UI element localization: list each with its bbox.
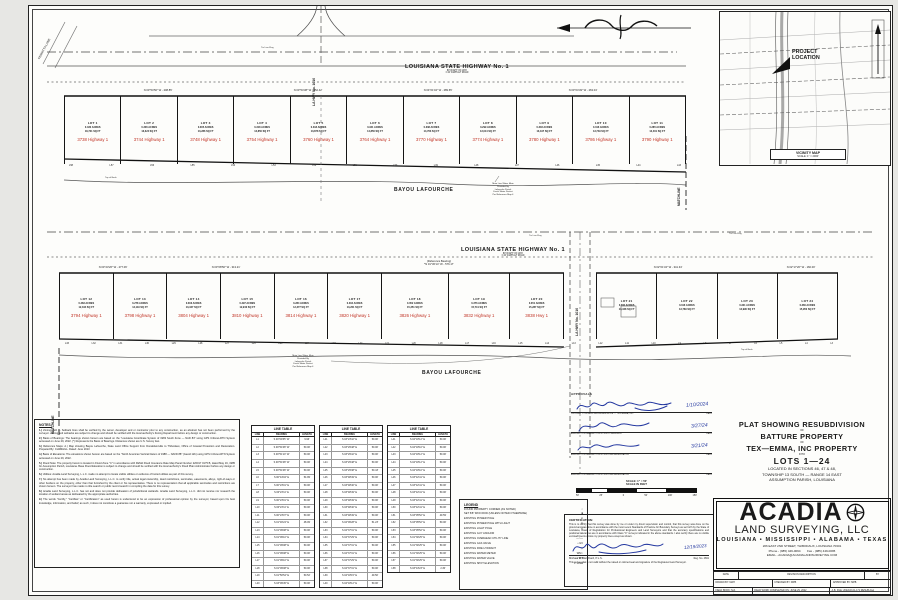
line-id: L42 bbox=[388, 445, 400, 452]
line-length: 50.00' bbox=[436, 445, 450, 452]
line-label: L52 bbox=[312, 164, 316, 167]
lot-acres: 0.283 ACRES bbox=[79, 302, 95, 305]
line-bearing: S 04°37'29" E bbox=[332, 558, 368, 565]
revision-header-row: DATE REVISION DESCRIPTION BY bbox=[714, 572, 890, 580]
lot-parcel: LOT 16 0.284 ACRES 12,377 SQ FT 3814 Hig… bbox=[275, 273, 329, 339]
lot-number: LOT 6 bbox=[370, 121, 380, 125]
scale-tick: 50' bbox=[644, 494, 647, 497]
lot-number: LOT 10 bbox=[595, 121, 607, 125]
lot-sqft: 13,324 SQ FT bbox=[141, 130, 157, 133]
line-table-3: LINE TABLE LINE BEARING LENGTH L41 S 04°… bbox=[387, 425, 451, 573]
line-length: 50.00' bbox=[436, 460, 450, 467]
legend-item-label: SET 5/8" IRON ROD (UNLESS NOTED OTHERWIS… bbox=[464, 513, 527, 516]
scale-tick: 25' bbox=[599, 494, 602, 497]
line-bearing: S 03°29'48" E bbox=[332, 460, 368, 467]
col-bearing: BEARING bbox=[400, 433, 436, 436]
lot-address: 3820 Highway 1 bbox=[339, 313, 370, 318]
lot-number: LOT 24 bbox=[802, 299, 814, 303]
line-id: L57 bbox=[388, 558, 400, 565]
col-line: LINE bbox=[252, 433, 264, 436]
line-table-row: L27 S 03°48'46" E 50.00' bbox=[320, 483, 382, 491]
scale-tick: 100' bbox=[668, 494, 672, 497]
line-id: L32 bbox=[320, 520, 332, 527]
drawn-by: DRAWN BY: MAH bbox=[714, 580, 773, 587]
line-bearing: S 03°48'49" E bbox=[332, 513, 368, 520]
line-length: 50.00' bbox=[368, 445, 382, 452]
line-id: L37 bbox=[320, 558, 332, 565]
lot-address: 3838 Hwy 1 bbox=[525, 313, 548, 318]
lot-number: LOT 3 bbox=[201, 121, 211, 125]
water-main-note-band1: Main Line Water Main Provided By Lafourc… bbox=[477, 183, 529, 197]
bearing-label: N 03°23'26" W - 277.06' bbox=[99, 266, 128, 269]
line-bearing: S 01°50'54" E bbox=[264, 573, 300, 580]
lot-number: LOT 14 bbox=[188, 297, 200, 301]
line-table-row: L40 S 04°18'12" E 50.00' bbox=[320, 581, 382, 588]
line-length: 50.00' bbox=[436, 535, 450, 542]
line-length: 50.00' bbox=[368, 475, 382, 482]
surveyor-reg-no: Reg. No. 4661 bbox=[694, 557, 709, 560]
lot-acres: 0.303 ACRES bbox=[537, 126, 553, 129]
lot-acres: 0.305 ACRES bbox=[198, 126, 214, 129]
lot-number: LOT 16 bbox=[295, 297, 307, 301]
bearing-label: N 02°01'34" W - 341.34' bbox=[654, 266, 683, 269]
lot-acres: 0.299 ACRES bbox=[480, 126, 496, 129]
line-table-row: L30 S 03°48'46" E 50.00' bbox=[320, 505, 382, 513]
line-label: L33 bbox=[65, 342, 69, 345]
note-text: The words "Certify," "Certifies" or "Cer… bbox=[39, 498, 235, 504]
line-label: L6 bbox=[754, 342, 757, 345]
lot-number: LOT 4 bbox=[257, 121, 267, 125]
line-table-row: L24 S 03°29'48" E 50.00' bbox=[320, 460, 382, 468]
col-length: LENGTH bbox=[436, 433, 450, 436]
line-bearing: S 01°09'08" E bbox=[264, 551, 300, 558]
line-table-row: L33 S 04°37'31" E 50.00' bbox=[320, 528, 382, 536]
line-bearing: S 04°18'10" E bbox=[400, 445, 436, 452]
line-label-row-band2: L33L32L31L30L29L28L27L26L25L24L23L22L21L… bbox=[65, 342, 833, 345]
note-item: 7.) No attempt has been made by Acadia L… bbox=[39, 478, 235, 488]
lot-sqft: 14,763 SQ FT bbox=[424, 130, 440, 133]
legend-item-label: EXISTING FIRE HYDRANT bbox=[464, 548, 496, 551]
line-label: L23 bbox=[332, 342, 336, 345]
line-bearing: S 04°37'31" E bbox=[332, 543, 368, 550]
lot-parcel: LOT 18 0.352 ACRES 15,351 SQ FT 3826 Hig… bbox=[382, 273, 449, 339]
line-bearing: S 01°46'24" E bbox=[264, 520, 300, 527]
line-table-row: L16 S 01°09'08" E 50.00' bbox=[252, 551, 314, 559]
line-bearing: S 00°23'07" E bbox=[264, 513, 300, 520]
highway1-label-band1: LOUISIANA STATE HIGHWAY No. 1 80' RIGHT … bbox=[405, 64, 509, 74]
line-bearing: S 04°18'12" E bbox=[400, 460, 436, 467]
line-bearing: S 03°23'42" E bbox=[332, 437, 368, 444]
col-bearing: BEARING bbox=[264, 433, 300, 436]
line-label: L12 bbox=[598, 342, 602, 345]
scale-bar-graphic bbox=[576, 488, 697, 494]
lot-parcel: LOT 12 0.283 ACRES 12,344 SQ FT 3794 Hig… bbox=[60, 273, 114, 339]
line-label: L31 bbox=[118, 342, 122, 345]
certification-title: CERTIFICATION: bbox=[569, 518, 709, 522]
lot-address: 3804 Highway 1 bbox=[178, 313, 209, 318]
highway1-label-band2: LOUISIANA STATE HIGHWAY No. 1 80' RIGHT … bbox=[461, 247, 565, 257]
lot-acres: 0.316 ACRES bbox=[679, 304, 695, 307]
line-bearing: S 03°43'23" E bbox=[400, 566, 436, 573]
line-length: 50.00' bbox=[300, 460, 314, 467]
line-table-row: L17 S 01°09'10" E 50.00' bbox=[252, 558, 314, 566]
line-length: 50.00' bbox=[368, 558, 382, 565]
line-label: L55 bbox=[191, 164, 195, 167]
line-id: L53 bbox=[388, 528, 400, 535]
legend-item-label: FOUND PROPERTY CORNER (AS NOTED) bbox=[464, 509, 516, 512]
approval-label-representative-2: ASSUMPTION PARISH POLICE JURY REPRESENTA… bbox=[571, 474, 629, 476]
line-id: L17 bbox=[252, 558, 264, 565]
lot-acres: 0.278 ACRES bbox=[132, 302, 148, 305]
lot-address: 3832 Highway 1 bbox=[464, 313, 495, 318]
lot-number: LOT 18 bbox=[409, 297, 421, 301]
line-length: 50.00' bbox=[436, 498, 450, 505]
firm-name: ACADIA bbox=[739, 501, 842, 525]
revision-strip: DATE REVISION DESCRIPTION BY DRAWN BY: M… bbox=[713, 571, 891, 595]
line-label: L26 bbox=[252, 342, 256, 345]
legend-item-label: EXISTING POWER POLE WITH LIGHT bbox=[464, 523, 510, 526]
col-length: LENGTH bbox=[300, 433, 314, 436]
lot-parcel: LOT 8 0.299 ACRES 13,014 SQ FT 3774 High… bbox=[460, 96, 516, 164]
line-bearing: S 00°51'08" W bbox=[264, 468, 300, 475]
line-length: 50.00' bbox=[436, 490, 450, 497]
line-table-row: L46 S 03°42'41" E 50.00' bbox=[388, 475, 450, 483]
surveyor-firm-block: ACADIA LAND SURVEYING, LLC LOUISIANA • M… bbox=[713, 498, 891, 571]
lot-parcel: LOT 2 0.306 ACRES 13,324 SQ FT 3744 High… bbox=[121, 96, 177, 164]
line-id: L24 bbox=[320, 460, 332, 467]
line-bearing: S 03°42'41" E bbox=[400, 475, 436, 482]
line-length: 50.00' bbox=[300, 535, 314, 542]
bearing-label: N 02°17'20" W - 160.00' bbox=[787, 266, 816, 269]
date-label: DATE bbox=[706, 474, 712, 476]
certification-disclaimer: This survey plat is not valid without th… bbox=[569, 561, 709, 564]
lot-sqft: 15,741 SQ FT bbox=[471, 306, 487, 309]
lot-sqft: 12,119 SQ FT bbox=[132, 306, 148, 309]
signature-surveyor bbox=[571, 539, 666, 555]
certification-box: CERTIFICATION: This is to certify that t… bbox=[564, 514, 714, 587]
lot-parcel: LOT 22 0.316 ACRES 13,769 SQ FT bbox=[657, 273, 717, 339]
line-length: 50.00' bbox=[436, 520, 450, 527]
line-id: L31 bbox=[320, 513, 332, 520]
line-table-row: L42 S 04°18'10" E 50.00' bbox=[388, 445, 450, 453]
vicinity-map: PROJECT LOCATION VICINITY MAP SCALE: 1" … bbox=[719, 11, 891, 166]
line-label: L43 bbox=[677, 164, 681, 167]
lot-acres: 0.318 ACRES bbox=[311, 126, 327, 129]
line-id: L2 bbox=[252, 445, 264, 452]
lot-acres: 0.285 ACRES bbox=[649, 126, 665, 129]
line-table-title: LINE TABLE bbox=[252, 426, 314, 433]
line-length: 48.09' bbox=[300, 520, 314, 527]
line-id: L41 bbox=[388, 437, 400, 444]
line-table-row: L52 S 03°05'52" E 50.00' bbox=[388, 520, 450, 528]
line-bearing: S 04°37'29" E bbox=[332, 535, 368, 542]
line-length: 50.00' bbox=[436, 528, 450, 535]
vicinity-map-caption: VICINITY MAP SCALE: 1" = 2000' bbox=[770, 149, 846, 160]
line-bearing: S 01°09'08" E bbox=[264, 528, 300, 535]
lot-sqft: 13,348 SQ FT bbox=[619, 308, 635, 311]
line-label: L32 bbox=[92, 342, 96, 345]
lot-address: 3786 Highway 1 bbox=[585, 137, 616, 142]
lot-parcel: LOT 13 0.278 ACRES 12,119 SQ FT 3798 Hig… bbox=[114, 273, 168, 339]
legend-item: FOUND PROPERTY CORNER (AS NOTED) ○ bbox=[464, 509, 583, 512]
line-id: L45 bbox=[388, 468, 400, 475]
legend-item-label: EXISTING GAS VALVE bbox=[464, 543, 491, 546]
line-id: L38 bbox=[320, 566, 332, 573]
line-id: L54 bbox=[388, 535, 400, 542]
line-id: L10 bbox=[252, 505, 264, 512]
line-label: L9 bbox=[678, 342, 681, 345]
lot-sqft: 13,347 SQ FT bbox=[186, 306, 202, 309]
lot-parcel: LOT 21 0.306 ACRES 13,348 SQ FT bbox=[597, 273, 657, 339]
line-label: L57 bbox=[110, 164, 114, 167]
scale-bar-ticks: 50'25'050'100'150' bbox=[576, 494, 697, 497]
tie-line-flag-label: Tie Line Flag bbox=[529, 235, 542, 237]
plat-title-lots: LOTS 1—24 bbox=[713, 456, 891, 466]
line-id: L18 bbox=[252, 566, 264, 573]
note-text: Utilities: Acadia Land Surveying, L.L.C.… bbox=[43, 473, 194, 476]
lot-acres: 0.341 ACRES bbox=[367, 126, 383, 129]
date-label: DATE bbox=[706, 454, 712, 456]
top-of-bank-label: Top of Bank bbox=[741, 349, 753, 351]
line-bearing: S 03°48'49" E bbox=[332, 475, 368, 482]
lot-number: LOT 20 bbox=[531, 297, 543, 301]
line-bearing: S 00°51'08" W bbox=[264, 445, 300, 452]
line-label: L25 bbox=[278, 342, 282, 345]
approval-row-representative-2: ASSUMPTION PARISH POLICE JURY REPRESENTA… bbox=[571, 460, 712, 479]
lot-number: LOT 13 bbox=[134, 297, 146, 301]
certification-body: This is to certify that this survey was … bbox=[569, 523, 709, 539]
lot-number: LOT 15 bbox=[241, 297, 253, 301]
line-table-row: L58 S 03°43'23" E 2.30' bbox=[388, 566, 450, 573]
line-label: L46 bbox=[555, 164, 559, 167]
line-length: 50.52' bbox=[300, 573, 314, 580]
line-table-row: L11 S 00°23'07" E 50.00' bbox=[252, 513, 314, 521]
line-bearing: S 03°29'38" E bbox=[332, 468, 368, 475]
line-label: L4 bbox=[805, 342, 808, 345]
line-table-row: L19 S 01°50'54" E 50.52' bbox=[252, 573, 314, 581]
line-length: 50.00' bbox=[368, 490, 382, 497]
line-length: 50.00' bbox=[436, 475, 450, 482]
line-table-row: L48 S 03°42'41" E 50.00' bbox=[388, 490, 450, 498]
line-label: L20 bbox=[412, 342, 416, 345]
line-table-row: L9 S 00°23'01" E 50.00' bbox=[252, 498, 314, 506]
lot-acres: 0.306 ACRES bbox=[141, 126, 157, 129]
line-bearing: S 00°23'01" E bbox=[264, 483, 300, 490]
line-length: 50.00' bbox=[436, 543, 450, 550]
lot-address: 3798 Highway 1 bbox=[125, 313, 156, 318]
line-length: 50.00' bbox=[300, 566, 314, 573]
line-table-row: L55 S 01°30'25" E 50.00' bbox=[388, 543, 450, 551]
highway1-asphalt: ± 40' ASPHALT ROAD bbox=[405, 72, 509, 74]
note-text: Acadia Land Surveying, L.L.C. has not an… bbox=[39, 490, 235, 496]
legend-title: LEGEND bbox=[464, 503, 583, 507]
approval-label-representative: ASSUMPTION PARISH POLICE JURY REPRESENTA… bbox=[571, 454, 629, 456]
line-bearing: S 04°18'12" E bbox=[332, 581, 368, 588]
line-bearing: S 04°09'28" E bbox=[332, 520, 368, 527]
line-label: L16 bbox=[492, 342, 496, 345]
compass-logo-icon bbox=[846, 503, 865, 522]
lot-parcel: LOT 17 0.304 ACRES 13,261 SQ FT 3820 Hig… bbox=[328, 273, 382, 339]
top-of-bank-label: Top of Bank bbox=[105, 177, 117, 179]
line-id: L1 bbox=[252, 437, 264, 444]
line-label: L5 bbox=[780, 342, 783, 345]
line-table-row: L43 S 04°18'12" E 50.00' bbox=[388, 452, 450, 460]
lot-number: LOT 12 bbox=[80, 297, 92, 301]
vicinity-map-scale: SCALE: 1" = 2000' bbox=[771, 155, 845, 158]
lot-parcel: LOT 6 0.341 ACRES 14,856 SQ FT 3764 High… bbox=[347, 96, 403, 164]
legend-item-label: EXISTING GUY ANCHOR bbox=[464, 533, 494, 536]
line-id: L51 bbox=[388, 513, 400, 520]
lot-parcel: LOT 15 0.297 ACRES 12,940 SQ FT 3810 Hig… bbox=[221, 273, 275, 339]
line-id: L15 bbox=[252, 543, 264, 550]
line-table-row: L20 S 03°09'45" E 50.00' bbox=[252, 581, 314, 588]
lot-parcel: LOT 1 0.430 ACRES 18,721 SQ FT 3738 High… bbox=[65, 96, 121, 164]
line-label: L14 bbox=[545, 342, 549, 345]
title-block: PLAT SHOWING RESUBDIVISION OF BATTURE PR… bbox=[713, 421, 891, 483]
lot-sqft: 15,351 SQ FT bbox=[407, 306, 423, 309]
line-table-row: L32 S 04°09'28" E 51.23' bbox=[320, 520, 382, 528]
line-id: L49 bbox=[388, 498, 400, 505]
line-length: 50.00' bbox=[436, 452, 450, 459]
line-label: L27 bbox=[225, 342, 229, 345]
line-length: 2.30' bbox=[436, 566, 450, 573]
bearing-label: N 03°54'38" W - 252.42' bbox=[294, 89, 323, 92]
lot-acres: 0.338 ACRES bbox=[424, 126, 440, 129]
line-id: L16 bbox=[252, 551, 264, 558]
line-length: 50.00' bbox=[300, 551, 314, 558]
line-id: L33 bbox=[320, 528, 332, 535]
lot-parcel: LOT 20 0.351 ACRES 15,287 SQ FT 3838 Hwy… bbox=[510, 273, 563, 339]
line-table-row: L18 S 01°09'08" E 50.00' bbox=[252, 566, 314, 574]
approval-row-president: 3/27/24 ASSUMPTION PARISH POLICE JURY PR… bbox=[571, 419, 712, 438]
line-label: L30 bbox=[145, 342, 149, 345]
lot-number: LOT 11 bbox=[651, 121, 663, 125]
line-label: L51 bbox=[353, 164, 357, 167]
lot-row-band2-east: LOT 21 0.306 ACRES 13,348 SQ FT LOT 22 0… bbox=[596, 273, 838, 339]
lot-number: LOT 21 bbox=[621, 299, 633, 303]
line-table-row: L25 S 03°29'38" E 50.43' bbox=[320, 468, 382, 476]
note-text: No attempt has been made by Acadia Land … bbox=[39, 478, 235, 488]
approval-row-representative: 3/21/24 ASSUMPTION PARISH POLICE JURY RE… bbox=[571, 439, 712, 458]
scale-tick: 50' bbox=[576, 494, 579, 497]
line-table-row: L38 S 04°37'31" E 50.00' bbox=[320, 566, 382, 574]
line-bearing: S 03°05'52" E bbox=[400, 513, 436, 520]
approval-row-owner: 1/10/2024 PROPERTY OWNERS REPRESENTATIVE… bbox=[571, 398, 712, 417]
line-length: 50.00' bbox=[368, 543, 382, 550]
line-table-row: L50 S 03°42'41" E 50.00' bbox=[388, 505, 450, 513]
scale-bar: SCALE: 1" = 50' SCALE IN FEET 50'25'050'… bbox=[576, 480, 697, 497]
line-table-row: L51 S 03°05'52" E 49.59' bbox=[388, 513, 450, 521]
line-id: L5 bbox=[252, 468, 264, 475]
approved-by: APPROVED BY: MPB bbox=[831, 580, 890, 587]
la-hwy-1010-label-band2: LA HWY No. 1010 bbox=[575, 308, 579, 336]
approval-date-owner: 1/10/2024 bbox=[686, 401, 709, 409]
line-label: L49 bbox=[434, 164, 438, 167]
line-length: 50.00' bbox=[300, 468, 314, 475]
line-table-row: L7 S 00°23'01" E 50.00' bbox=[252, 483, 314, 491]
lot-sqft: 13,850 SQ FT bbox=[254, 130, 270, 133]
line-table-row: L5 S 00°51'08" W 50.00' bbox=[252, 468, 314, 476]
lot-number: LOT 8 bbox=[483, 121, 493, 125]
note-text: Basis of Elevations: The elevations show… bbox=[39, 453, 235, 459]
line-id: L40 bbox=[320, 581, 332, 588]
line-id: L9 bbox=[252, 498, 264, 505]
scale-tick: 150' bbox=[693, 494, 697, 497]
line-label: L44 bbox=[636, 164, 640, 167]
line-label: L7 bbox=[729, 342, 732, 345]
plat-title-line3: TEX—EMMA, INC PROPERTY bbox=[713, 445, 891, 453]
lot-sqft: 12,344 SQ FT bbox=[78, 306, 94, 309]
lot-address: 3754 Highway 1 bbox=[247, 137, 278, 142]
line-label: L54 bbox=[231, 164, 235, 167]
line-label: L21 bbox=[385, 342, 389, 345]
certification-signature-zone: 12/19/2023 bbox=[569, 538, 709, 555]
line-table-row: L4 S 00°51'08" W 50.00' bbox=[252, 460, 314, 468]
line-label: L3 bbox=[830, 342, 833, 345]
line-label: L56 bbox=[150, 164, 154, 167]
line-id: L27 bbox=[320, 483, 332, 490]
bearing-label: N 04°01'04" W - 289.65' bbox=[424, 89, 453, 92]
bearing-label: N 03°04'49" W - 263.04' bbox=[569, 89, 598, 92]
line-bearing: S 04°18'12" E bbox=[400, 452, 436, 459]
line-bearing: S 04°18'10" E bbox=[400, 468, 436, 475]
checked-by: CHECKED BY: MPB bbox=[773, 580, 832, 587]
note-text: Zoning: N/A — Setback lines shall be ver… bbox=[39, 429, 235, 435]
line-length: 50.00' bbox=[368, 460, 382, 467]
line-table-row: L28 S 03°48'49" E 50.00' bbox=[320, 490, 382, 498]
lot-sqft: 12,401 SQ FT bbox=[649, 130, 665, 133]
note-item: 6.) Utilities: Acadia Land Surveying, L.… bbox=[39, 473, 235, 476]
line-length: 50.00' bbox=[368, 513, 382, 520]
lot-row-band1: LOT 1 0.430 ACRES 18,721 SQ FT 3738 High… bbox=[64, 96, 686, 164]
line-id: L19 bbox=[252, 573, 264, 580]
line-table-row: L31 S 03°48'49" E 50.00' bbox=[320, 513, 382, 521]
line-label: L58 bbox=[69, 164, 73, 167]
line-length: 50.00' bbox=[300, 513, 314, 520]
legend-item-label: EXISTING SPOT ELEVATION bbox=[464, 563, 499, 566]
lot-row-band2-west: LOT 12 0.283 ACRES 12,344 SQ FT 3794 Hig… bbox=[59, 273, 564, 339]
line-length: 54.99' bbox=[300, 475, 314, 482]
line-length: 50.00' bbox=[436, 468, 450, 475]
line-label: L10 bbox=[652, 342, 656, 345]
scale-tick: 0 bbox=[623, 494, 624, 497]
lot-acres: 0.321 ACRES bbox=[739, 304, 755, 307]
legend-item-label: EXISTING WATER VALVE bbox=[464, 558, 495, 561]
line-table-row: L2 S 00°51'08" W 50.00' bbox=[252, 445, 314, 453]
line-length: 50.00' bbox=[300, 543, 314, 550]
north-arrow-ornament bbox=[557, 15, 691, 39]
line-table-row: L57 S 01°30'25" E 50.00' bbox=[388, 558, 450, 566]
line-length: 50.00' bbox=[368, 498, 382, 505]
line-bearing: S 04°37'31" E bbox=[332, 551, 368, 558]
line-length: 50.00' bbox=[368, 505, 382, 512]
lot-address: 3770 Highway 1 bbox=[416, 137, 447, 142]
line-table-row: L36 S 04°37'31" E 50.00' bbox=[320, 551, 382, 559]
line-id: L43 bbox=[388, 452, 400, 459]
lot-address: 3810 Highway 1 bbox=[232, 313, 263, 318]
lot-parcel: LOT 7 0.338 ACRES 14,763 SQ FT 3770 High… bbox=[404, 96, 460, 164]
line-bearing: S 01°09'10" E bbox=[264, 558, 300, 565]
plat-scan-page: { "vicinity": { "project_location": "PRO… bbox=[0, 0, 898, 600]
line-label: L18 bbox=[438, 342, 442, 345]
line-length: 50.00' bbox=[300, 581, 314, 588]
line-length: 50.00' bbox=[368, 566, 382, 573]
line-id: L26 bbox=[320, 475, 332, 482]
line-bearing: S 04°37'31" E bbox=[332, 528, 368, 535]
line-label: L28 bbox=[198, 342, 202, 345]
line-id: L46 bbox=[388, 475, 400, 482]
approvals-section: APPROVALS 1/10/2024 PROPERTY OWNERS REPR… bbox=[571, 392, 712, 478]
